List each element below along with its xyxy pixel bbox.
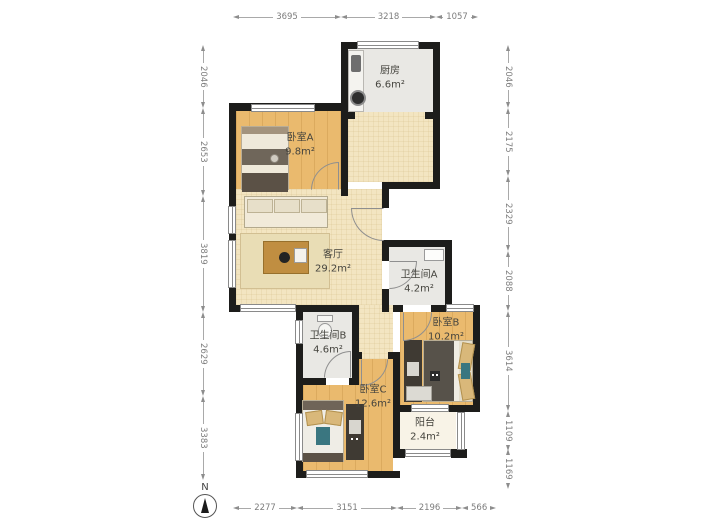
wall-segment [393, 352, 400, 458]
room-name: 厨房 [375, 65, 405, 79]
wall-segment [425, 112, 440, 119]
dimension-left: 3819 [198, 196, 208, 312]
kettle-icon [279, 252, 290, 263]
window [228, 206, 236, 234]
dimension-right: 1109 [503, 411, 513, 449]
coffee-table [263, 241, 309, 274]
sofa [244, 196, 328, 228]
bed [302, 400, 344, 462]
dimension-right: 2175 [503, 108, 513, 176]
wall-segment [341, 112, 355, 119]
dimension-right: 2329 [503, 176, 513, 251]
wall-segment [341, 42, 348, 196]
dimension-value: 3218 [375, 12, 403, 22]
room-area: 10.2m² [428, 330, 464, 344]
dimension-value: 3695 [273, 12, 301, 22]
dimension-left: 2653 [198, 108, 208, 196]
dimension-left: 3383 [198, 396, 208, 480]
window [295, 320, 303, 344]
wall-segment [382, 247, 389, 261]
room-area: 2.4m² [410, 430, 440, 444]
room-label-bathroom-b: 卫生间B 4.6m² [310, 330, 347, 357]
dimension-left: 2629 [198, 312, 208, 396]
wall-segment [296, 378, 326, 385]
room-label-balcony: 阳台 2.4m² [410, 417, 440, 444]
dimension-value: 2653 [198, 138, 208, 166]
dimension-right: 1169 [503, 449, 513, 480]
room-area: 12.6m² [355, 397, 391, 411]
dimension-value: 1109 [503, 417, 513, 445]
compass-circle [193, 494, 217, 518]
dimension-value: 1169 [503, 455, 513, 483]
wall-segment [382, 240, 452, 247]
room-area: 29.2m² [315, 262, 351, 276]
dimension-value: 2046 [503, 63, 513, 91]
dimension-right: 2088 [503, 251, 513, 311]
bed [241, 126, 289, 190]
floor-plan: 厨房 6.6m² 卧室A 9.8m² 客厅 29.2m² 卫生间A 4.2m² … [0, 0, 710, 532]
window [251, 104, 315, 112]
stove-icon [350, 90, 366, 106]
room-area: 4.2m² [401, 282, 438, 296]
dimension-top: 3218 [341, 12, 436, 22]
window [405, 449, 451, 457]
compass-north-label: N [188, 482, 222, 493]
window [295, 413, 303, 461]
wall-segment [393, 449, 405, 458]
room-area: 4.6m² [310, 343, 347, 357]
wall-segment [382, 182, 389, 208]
dimension-value: 3614 [503, 347, 513, 375]
room-label-living: 客厅 29.2m² [315, 249, 351, 276]
dimension-value: 3151 [333, 503, 361, 513]
dimension-top: 3695 [233, 12, 341, 22]
dining-floor [348, 112, 433, 182]
window [240, 304, 296, 312]
wall-segment [445, 240, 452, 312]
dimension-value: 1057 [443, 12, 471, 22]
room-area: 9.8m² [285, 145, 315, 159]
corridor-floor [359, 305, 393, 359]
dimension-value: 2088 [503, 267, 513, 295]
window [446, 304, 474, 312]
wall-segment [382, 182, 440, 189]
dimension-value: 2277 [251, 503, 279, 513]
washbasin [424, 249, 444, 261]
room-name: 阳台 [410, 417, 440, 431]
cabinet [406, 386, 432, 401]
room-name: 卧室A [285, 132, 315, 146]
window [457, 412, 465, 450]
wall-segment [352, 352, 362, 359]
toilet [317, 315, 333, 322]
wall-segment [382, 289, 389, 312]
wall-segment [451, 449, 467, 458]
room-label-bedroom-b: 卧室B 10.2m² [428, 317, 464, 344]
room-name: 卧室B [428, 317, 464, 331]
room-label-bathroom-a: 卫生间A 4.2m² [401, 269, 438, 296]
dimension-value: 2329 [503, 200, 513, 228]
dimension-bottom: 3151 [297, 503, 397, 513]
window [228, 240, 236, 288]
room-name: 卫生间A [401, 269, 438, 283]
window [357, 41, 419, 49]
wall-segment [393, 305, 403, 312]
dimension-value: 2629 [198, 340, 208, 368]
room-name: 卫生间B [310, 330, 347, 344]
sink-icon [351, 55, 361, 72]
wall-segment [448, 405, 480, 412]
wardrobe [346, 404, 364, 460]
room-name: 客厅 [315, 249, 351, 263]
dimension-value: 2175 [503, 128, 513, 156]
dimension-bottom: 2196 [397, 503, 462, 513]
room-label-bedroom-c: 卧室C 12.6m² [355, 384, 391, 411]
room-label-bedroom-a: 卧室A 9.8m² [285, 132, 315, 159]
dimension-top: 1057 [436, 12, 478, 22]
dimension-value: 566 [468, 503, 490, 513]
dimension-value: 3819 [198, 240, 208, 268]
dimension-value: 3383 [198, 424, 208, 452]
wall-segment [352, 305, 359, 385]
room-name: 卧室C [355, 384, 391, 398]
dimension-right: 3614 [503, 311, 513, 411]
room-label-kitchen: 厨房 6.6m² [375, 65, 405, 92]
kitchen-counter [348, 50, 364, 112]
dimension-bottom: 2277 [233, 503, 297, 513]
dimension-right: 2046 [503, 45, 513, 108]
compass-needle-icon [201, 498, 209, 513]
dimension-value: 2046 [198, 63, 208, 91]
compass: N [188, 482, 222, 518]
window [411, 404, 449, 412]
dimension-value: 2196 [416, 503, 444, 513]
room-area: 6.6m² [375, 78, 405, 92]
dimension-left: 2046 [198, 45, 208, 108]
window [306, 470, 368, 478]
dimension-bottom: 566 [462, 503, 496, 513]
